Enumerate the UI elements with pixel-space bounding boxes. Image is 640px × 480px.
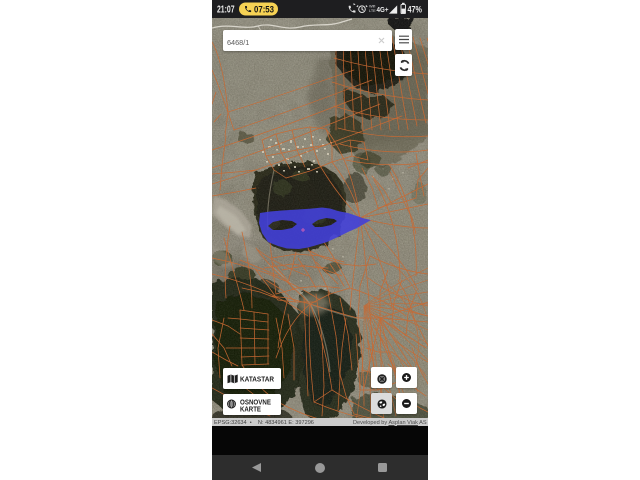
svg-text:LTE: LTE xyxy=(369,9,376,13)
svg-text:4G+: 4G+ xyxy=(377,5,390,14)
svg-text:07:53: 07:53 xyxy=(254,4,274,15)
svg-text:21:07: 21:07 xyxy=(217,5,235,16)
svg-text:KARTE: KARTE xyxy=(240,407,261,414)
svg-text:Wifi: Wifi xyxy=(369,5,375,9)
svg-text:KATASTAR: KATASTAR xyxy=(240,375,274,384)
svg-text:47%: 47% xyxy=(408,4,423,14)
svg-text:OSNOVNE: OSNOVNE xyxy=(240,400,271,407)
